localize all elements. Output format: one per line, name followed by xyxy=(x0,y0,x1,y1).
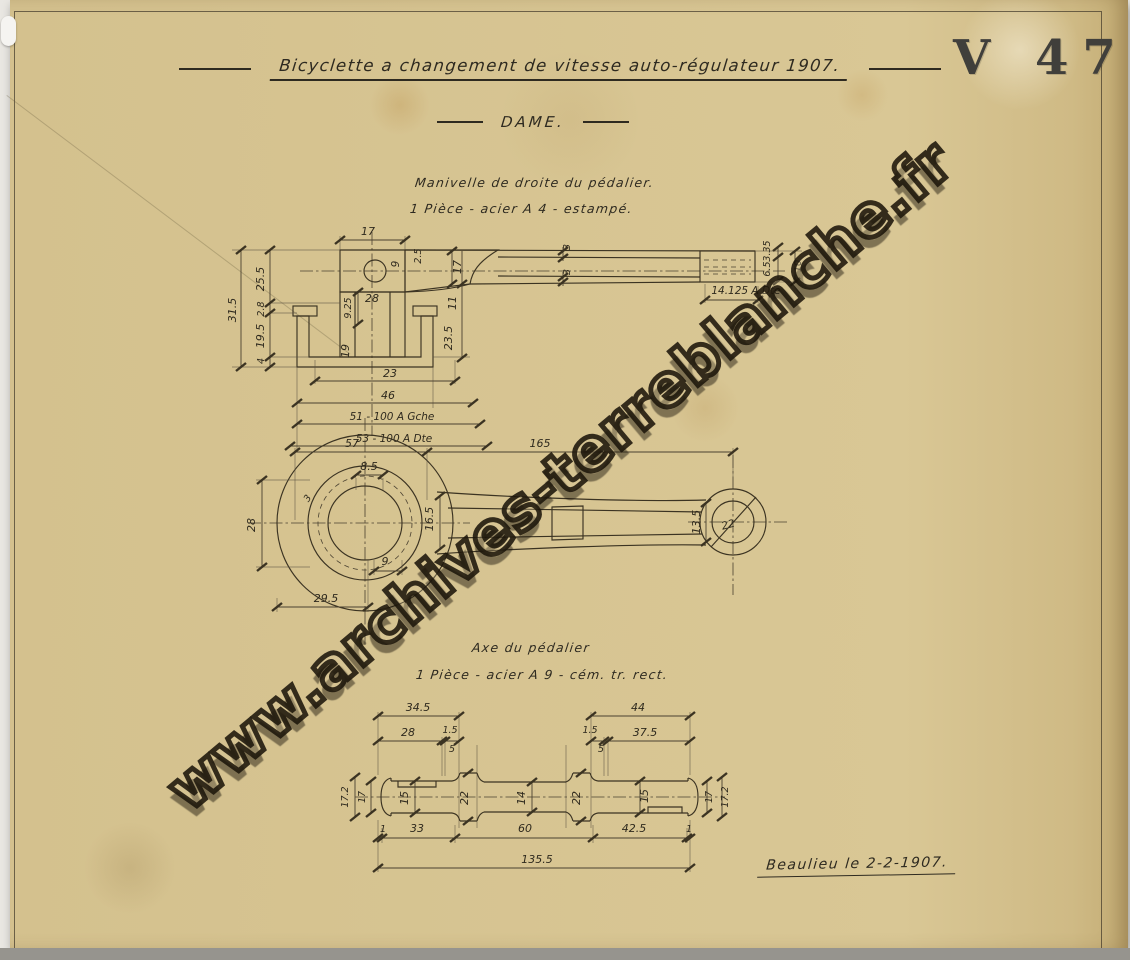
dim-label: 9 xyxy=(390,260,402,267)
dim-label: 2.8 xyxy=(256,301,267,316)
scanned-technical-drawing: { "header": { "title": "Bicyclette a cha… xyxy=(0,0,1130,960)
dim-label: 46 xyxy=(381,389,395,402)
axle-view: 34.5 44 28 1.5 5 1.5 5 37.5 17.2 17 15 2… xyxy=(340,701,731,872)
dim-label: 19 xyxy=(339,344,352,358)
dim-label: 13.5 xyxy=(690,510,703,535)
dim-label: 23 xyxy=(383,367,397,380)
dim-label: 1 xyxy=(380,824,386,835)
dim-label: 10 xyxy=(793,260,804,272)
dim-label: 28 xyxy=(401,726,415,739)
dim-label: 17.2 xyxy=(340,786,351,807)
dim-label: 17 xyxy=(357,791,368,803)
dim-label: 17 xyxy=(704,791,715,803)
dim-label: 5 xyxy=(598,744,604,755)
dim-label: 135.5 xyxy=(521,853,553,866)
dim-label: 1.5 xyxy=(442,725,457,736)
dim-label: 8.5 xyxy=(360,460,378,473)
dim-label: 3 xyxy=(562,244,573,250)
dim-label: 25.5 xyxy=(254,267,267,292)
dim-label: 29.5 xyxy=(314,592,339,605)
dim-label: 34.5 xyxy=(406,701,431,714)
dim-label: 22 xyxy=(720,517,736,532)
dim-label: 4 xyxy=(256,358,267,364)
dim-label: 44 xyxy=(631,701,645,714)
dim-label: 60 xyxy=(518,822,532,835)
dim-label: 42.5 xyxy=(622,822,647,835)
dim-label: 17 xyxy=(361,225,375,238)
crank-side-view: 17 9 2.5 17 3 3 3.35 6.5 10 14.125 A Dte… xyxy=(226,225,804,450)
dim-label: 51 - 100 A Gche xyxy=(350,411,435,423)
dim-label: 37.5 xyxy=(633,726,658,739)
dim-label: 165 xyxy=(530,437,551,450)
dim-label: 1.5 xyxy=(582,725,597,736)
dim-label: 11 xyxy=(446,296,459,310)
dim-label: 3 xyxy=(562,269,573,275)
dim-label: 2.5 xyxy=(413,248,424,263)
dim-label: 16.5 xyxy=(423,507,436,532)
dim-label: 28 xyxy=(365,292,379,305)
dim-label: 22 xyxy=(570,791,583,805)
dim-label: 23.5 xyxy=(442,326,455,351)
dim-label: 15 xyxy=(638,789,651,803)
dim-label: 33 xyxy=(410,822,424,835)
dim-label: 14.125 A Dte xyxy=(711,285,780,297)
dim-label: 28 xyxy=(245,518,258,532)
dim-label: 9.25 xyxy=(343,297,354,318)
dim-label: 15 xyxy=(398,791,411,805)
dim-label: 31.5 xyxy=(226,298,239,323)
dim-label: 9 xyxy=(382,555,389,568)
dim-label: 5 xyxy=(449,744,455,755)
drawing-canvas: 17 9 2.5 17 3 3 3.35 6.5 10 14.125 A Dte… xyxy=(0,0,1130,960)
crank-front-view: 22 57 165 8.5 3 28 9 29.5 xyxy=(245,418,788,645)
dim-label: 3.35 xyxy=(762,240,773,261)
dim-label: 57 xyxy=(345,437,359,450)
dim-label: 22 xyxy=(458,791,471,805)
dim-label: 1 xyxy=(686,824,692,835)
dim-label: 14 xyxy=(515,791,528,805)
dim-label: 17.2 xyxy=(720,786,731,807)
dim-label: 19.5 xyxy=(254,324,267,349)
dim-label: 6.5 xyxy=(762,261,773,276)
